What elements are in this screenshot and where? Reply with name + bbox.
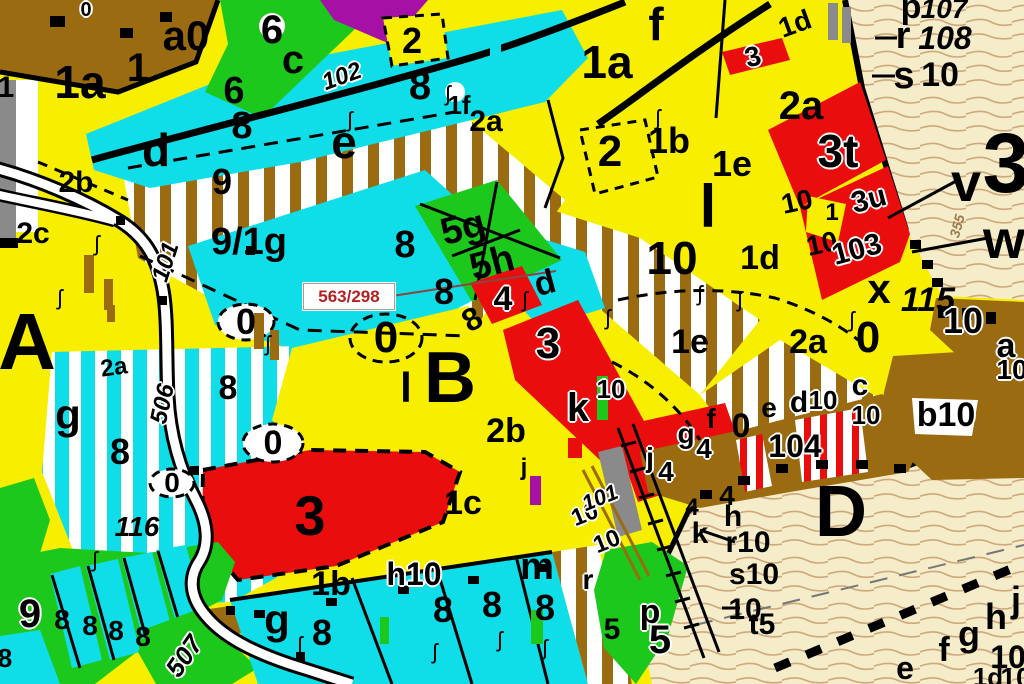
script-symbol: ʃ xyxy=(433,641,438,663)
map-label-0: 0 xyxy=(374,316,398,360)
map-label-f: f xyxy=(648,1,663,47)
map-label-8: 8 xyxy=(409,66,431,106)
map-label-10: 10 xyxy=(646,235,697,281)
parcel-annotation-box: 563/298 xyxy=(303,283,395,310)
map-label-e: e xyxy=(761,394,777,422)
map-label-g: g xyxy=(55,394,81,436)
map-label-10: 10 xyxy=(779,185,815,219)
script-symbol: ʃ xyxy=(498,629,503,651)
map-label-t5: t5 xyxy=(749,610,776,640)
script-symbol: ʃ xyxy=(95,233,100,255)
map-label-d: d xyxy=(531,264,560,302)
map-label-101: 101 xyxy=(148,239,183,285)
script-symbol: ʃ xyxy=(543,637,548,659)
map-label-116: 116 xyxy=(115,513,160,541)
map-label-3u: 3u xyxy=(848,181,890,219)
script-symbol: ʃ xyxy=(850,309,855,331)
map-label-2b: 2b xyxy=(486,414,526,448)
map-label-1c: 1c xyxy=(444,486,482,520)
map-label-10: 10 xyxy=(590,526,624,558)
map-label-1d: 1d xyxy=(973,664,1003,684)
map-label-d: d xyxy=(142,127,170,173)
map-label-e: e xyxy=(896,652,914,684)
script-symbol: ʃ xyxy=(348,109,353,131)
map-label-j: j xyxy=(521,456,528,480)
map-label-j: j xyxy=(1011,582,1021,618)
map-label-1: 1 xyxy=(127,48,149,88)
map-canvas: 1a1a0016c68de102281f2a2b2c99/1g1011af21b… xyxy=(0,0,1024,684)
map-label-0: 0 xyxy=(856,316,880,360)
map-label-8: 8 xyxy=(535,590,555,626)
parcel-annotation-text: 563/298 xyxy=(318,287,379,307)
map-label-3: 3 xyxy=(742,41,764,72)
script-symbol: ʃ xyxy=(298,634,303,656)
map-label-10: 10 xyxy=(852,402,881,428)
map-label-d: D xyxy=(815,476,867,548)
map-label-1e: 1e xyxy=(712,146,752,182)
map-label-8: 8 xyxy=(433,592,453,628)
map-label-c: c xyxy=(282,40,304,80)
map-label-x: x xyxy=(867,268,890,310)
map-label-3: 3 xyxy=(536,322,560,366)
map-label-8: 8 xyxy=(219,371,238,405)
map-label-10: 10 xyxy=(996,356,1024,384)
map-label-10: 10 xyxy=(1000,664,1024,684)
map-label-2a: 2a xyxy=(779,86,824,126)
map-label-a0: a0 xyxy=(163,15,210,57)
map-label-c: c xyxy=(852,371,869,401)
map-label-r: r xyxy=(896,17,911,55)
map-label-1a: 1a xyxy=(581,39,632,85)
map-label-8: 8 xyxy=(456,301,487,338)
map-label-2: 2 xyxy=(402,23,422,59)
map-label-8: 8 xyxy=(108,617,124,645)
map-label-1b: 1b xyxy=(648,123,690,159)
map-label-j: j xyxy=(646,444,654,472)
map-label-9: 9 xyxy=(212,164,232,200)
map-label-8: 8 xyxy=(394,226,415,264)
script-symbol: ʃ xyxy=(606,307,611,329)
map-label-8: 8 xyxy=(82,612,98,640)
map-label-1f: 1f xyxy=(447,92,470,118)
map-label-8: 8 xyxy=(135,623,151,651)
map-label-9-1g: 9/1g xyxy=(211,223,287,261)
map-label-0: 0 xyxy=(732,409,751,443)
map-label-1a: 1a xyxy=(54,59,105,105)
map-label-8: 8 xyxy=(231,107,252,145)
map-label-k: k xyxy=(692,519,709,549)
map-label-355: 355 xyxy=(947,213,967,239)
map-label-3: 3 xyxy=(983,121,1024,205)
script-symbol: ʃ xyxy=(523,289,528,311)
map-label-0: 0 xyxy=(236,304,256,340)
map-label-g: g xyxy=(677,420,694,448)
map-label-m: m xyxy=(520,548,554,586)
script-symbol: ʃ xyxy=(698,283,703,305)
map-label-1: 1 xyxy=(0,73,14,103)
map-label-2a: 2a xyxy=(789,325,827,359)
map-label-10: 10 xyxy=(921,58,959,92)
map-label-9: 9 xyxy=(19,594,41,634)
script-symbol: ʃ xyxy=(738,289,743,311)
map-label-3: 3 xyxy=(294,488,325,544)
map-label-0: 0 xyxy=(164,469,180,497)
map-labels-layer: 1a1a0016c68de102281f2a2b2c99/1g1011af21b… xyxy=(0,0,1024,684)
map-label-5: 5 xyxy=(649,620,671,660)
map-label-2a: 2a xyxy=(99,354,129,381)
map-label-a: A xyxy=(0,302,56,382)
map-label-2: 2 xyxy=(598,130,622,174)
script-symbol: ʃ xyxy=(446,83,451,105)
map-label-104: 104 xyxy=(768,430,821,462)
map-label-w: w xyxy=(983,213,1024,267)
map-label-h10: h10 xyxy=(386,558,441,590)
map-label-v: v xyxy=(951,156,981,210)
map-label-r10: r10 xyxy=(725,528,770,558)
map-label-3t: 3t xyxy=(818,128,859,174)
map-label-2a: 2a xyxy=(469,107,502,137)
script-symbol: ʃ xyxy=(58,287,63,309)
map-label-4: 4 xyxy=(658,458,674,486)
map-label-r: r xyxy=(583,566,594,594)
map-label-507: 507 xyxy=(161,631,207,681)
map-label-0: 0 xyxy=(264,426,283,460)
map-label-4: 4 xyxy=(494,282,513,316)
map-label-b: B xyxy=(424,342,476,414)
map-label-10: 10 xyxy=(809,387,838,413)
map-label-b10: b10 xyxy=(917,398,976,432)
map-label-k: k xyxy=(567,388,589,428)
map-label-1d: 1d xyxy=(775,5,815,42)
map-label-2c: 2c xyxy=(16,219,49,249)
script-symbol: ʃ xyxy=(93,549,98,571)
map-label-e: e xyxy=(331,119,357,165)
map-label-8: 8 xyxy=(110,434,130,470)
map-label-8: 8 xyxy=(434,274,454,310)
script-symbol: ʃ xyxy=(656,107,661,129)
map-label-108: 108 xyxy=(918,22,971,54)
map-label-5: 5 xyxy=(604,615,621,645)
script-symbol: ʃ xyxy=(266,333,271,355)
map-label-8: 8 xyxy=(54,606,70,634)
map-label-8: 8 xyxy=(482,587,502,623)
map-label-s: s xyxy=(893,57,914,95)
map-label-1: 1 xyxy=(825,201,838,225)
map-label-4: 4 xyxy=(696,435,712,463)
map-label-l: l xyxy=(400,367,412,409)
map-label-10: 10 xyxy=(943,303,983,339)
map-label-g: g xyxy=(958,616,980,652)
map-label-1b: 1b xyxy=(311,567,351,601)
map-label-506: 506 xyxy=(147,382,179,426)
map-label-10: 10 xyxy=(597,376,626,402)
map-label-8: 8 xyxy=(0,645,12,671)
map-label-g: g xyxy=(264,599,290,641)
map-label-8: 8 xyxy=(312,615,332,651)
map-label-101: 101 xyxy=(579,481,621,515)
map-label-f: f xyxy=(938,633,949,667)
map-label-f: f xyxy=(706,405,715,433)
map-label-6: 6 xyxy=(261,10,283,50)
map-label-s10: s10 xyxy=(729,560,779,590)
map-label-1d: 1d xyxy=(740,241,780,275)
map-label-d: d xyxy=(790,388,808,418)
map-label-102: 102 xyxy=(319,59,365,95)
map-label-0: 0 xyxy=(80,0,91,20)
map-label-h: h xyxy=(985,599,1007,635)
map-label-2b: 2b xyxy=(58,168,93,198)
map-label-1e: 1e xyxy=(671,325,709,359)
map-label-l: l xyxy=(700,177,717,237)
